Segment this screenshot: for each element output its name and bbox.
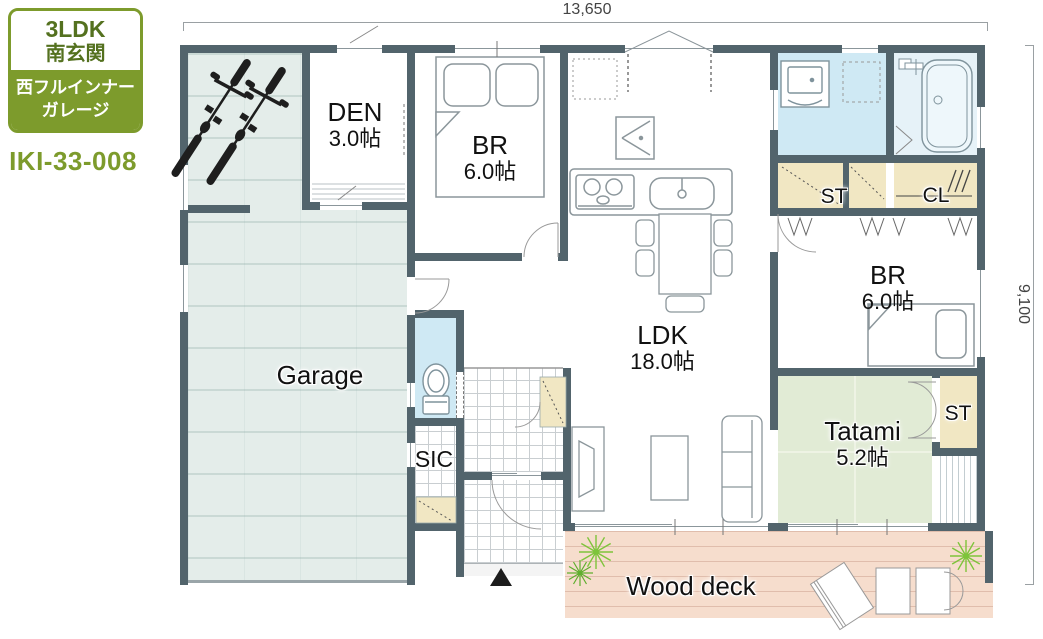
bathtub-icon (922, 60, 972, 152)
room-label-br1: BR 6.0帖 (430, 131, 550, 185)
vanity-icon (781, 61, 829, 107)
folding-door-mark (896, 126, 912, 154)
den-desk-icon (312, 184, 405, 199)
room-label-br2: BR 6.0帖 (828, 261, 948, 315)
plant-icon (579, 535, 613, 569)
kitchen-counter-icon (570, 169, 732, 215)
gable-mark (625, 31, 713, 52)
bifold-door-marks (788, 218, 972, 235)
room-label-st2: ST (933, 402, 983, 426)
room-label-garage: Garage (240, 361, 400, 390)
room-label-den: DEN 3.0帖 (300, 98, 410, 152)
dining-table-icon (636, 214, 732, 312)
room-label-st1: ST (808, 185, 860, 209)
entrance-triangle-marker (490, 568, 512, 586)
toilet-icon (423, 364, 449, 414)
refrigerator-icon (616, 117, 654, 159)
tv-board-icon (572, 427, 604, 511)
sic-cabinet (416, 497, 456, 523)
coffee-table-icon (651, 436, 688, 500)
room-label-sic: SIC (406, 447, 462, 473)
shower-fixture-icon (899, 59, 923, 75)
entry-cabinet (515, 377, 566, 427)
deck-chair-icon (916, 568, 963, 614)
washer-space-dashed (843, 62, 880, 102)
floor-plan-page: 3LDK 南玄関 西フルインナー ガレージ IKI-33-008 13,650 … (0, 0, 1043, 639)
pantry-dashed-area (573, 59, 617, 99)
casement-window-mark (350, 26, 378, 43)
deck-chair-icon (811, 562, 874, 629)
room-label-tatami: Tatami 5.2帖 (795, 417, 930, 471)
room-label-ldk: LDK 18.0帖 (600, 321, 725, 375)
room-label-cl: CL (910, 184, 962, 208)
furniture-layer (0, 0, 1043, 639)
room-label-wood-deck: Wood deck (615, 572, 767, 601)
sofa-icon (722, 416, 762, 522)
sliding-door-mark (338, 186, 356, 200)
deck-table-icon (876, 568, 910, 614)
plant-icon (950, 540, 982, 572)
